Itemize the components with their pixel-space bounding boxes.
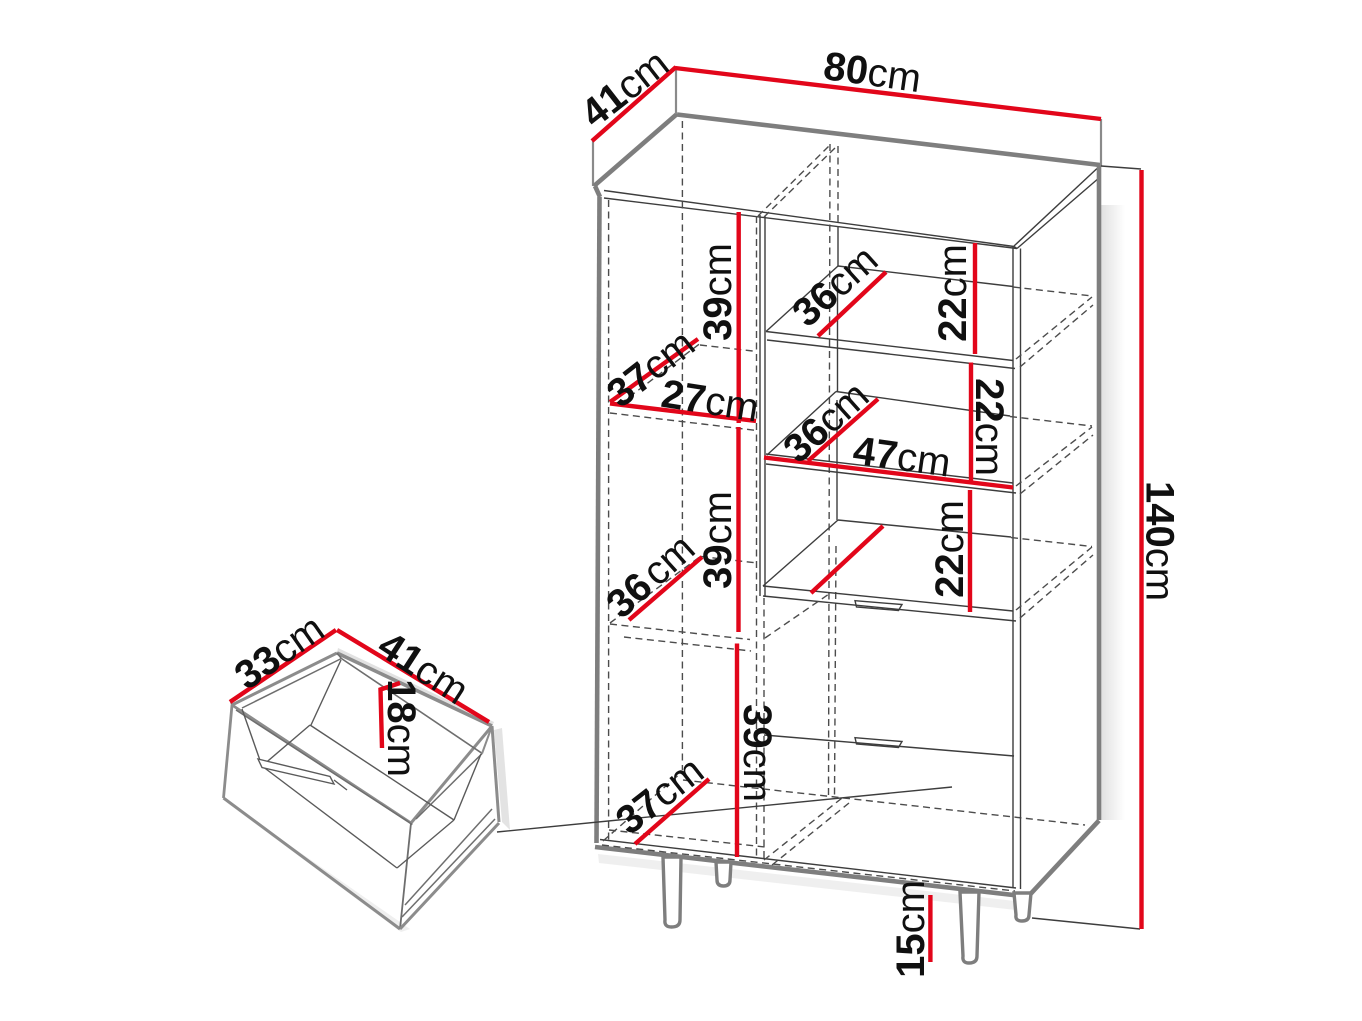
svg-text:18cm: 18cm	[379, 679, 423, 777]
svg-text:39cm: 39cm	[735, 704, 779, 802]
svg-text:39cm: 39cm	[696, 243, 740, 341]
svg-text:22cm: 22cm	[931, 244, 975, 342]
svg-text:15cm: 15cm	[889, 880, 933, 978]
svg-text:140cm: 140cm	[1138, 481, 1182, 601]
svg-text:22cm: 22cm	[967, 378, 1011, 476]
svg-text:22cm: 22cm	[928, 500, 972, 598]
svg-text:39cm: 39cm	[696, 491, 740, 589]
